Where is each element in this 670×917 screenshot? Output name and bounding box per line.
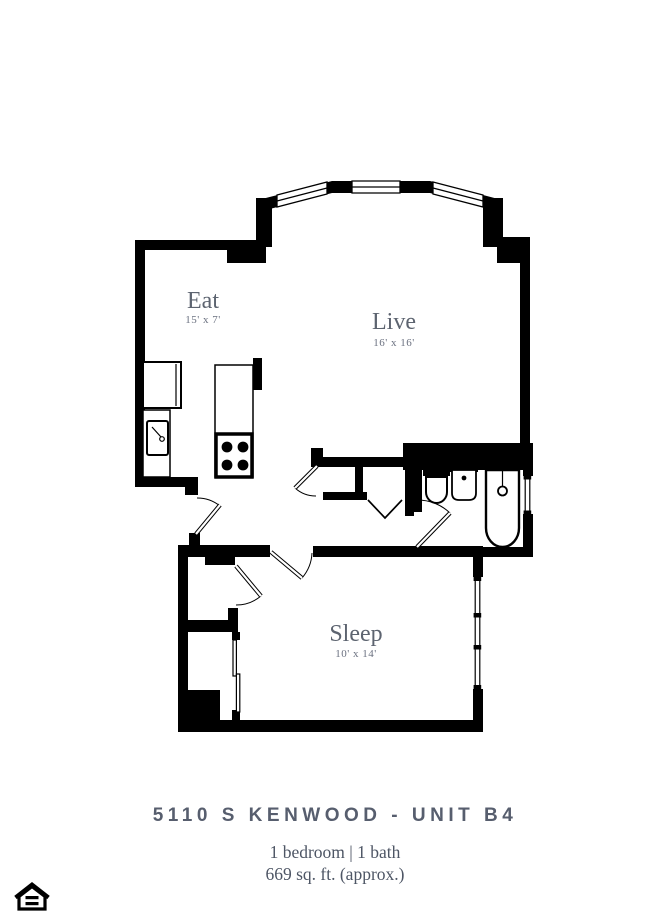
toilet-icon — [423, 466, 450, 503]
wall — [323, 492, 367, 500]
wall — [185, 620, 238, 632]
bathroom — [423, 464, 519, 547]
wall — [178, 720, 483, 732]
sleep-room-dims: 10' x 14' — [335, 648, 376, 660]
live-room-label: Live — [372, 309, 416, 335]
unit-title: 5110 S KENWOOD - UNIT B4 — [0, 805, 670, 827]
wall — [232, 632, 240, 640]
unit-details: 1 bedroom | 1 bath 669 sq. ft. (approx.) — [0, 841, 670, 885]
wall — [183, 690, 220, 722]
window-icon — [352, 181, 400, 193]
hall-closet-door — [295, 466, 317, 496]
window-icon — [433, 182, 483, 207]
wall — [311, 457, 413, 467]
wall — [189, 533, 200, 547]
bathtub-icon — [486, 470, 519, 547]
sleep-window — [472, 577, 484, 689]
sleep-room-label: Sleep — [329, 621, 382, 647]
live-room-dims: 16' x 16' — [373, 337, 414, 349]
eat-room-dims: 15' x 7' — [185, 314, 220, 326]
window-icon — [277, 182, 327, 207]
sink-icon — [147, 421, 168, 455]
wall — [185, 477, 198, 495]
bed-bath-line: 1 bedroom | 1 bath — [0, 841, 670, 863]
bath-sink-icon — [450, 464, 478, 500]
bifold-closet-door — [368, 500, 402, 518]
equal-housing-icon — [12, 880, 52, 914]
bath-window — [522, 476, 534, 514]
sleep-door — [271, 552, 312, 578]
sliding-closet-door — [233, 640, 240, 712]
kitchen-door — [196, 498, 220, 534]
sleep-closet-door — [236, 566, 261, 605]
floorplan-page: Eat 15' x 7' Live 16' x 16' Sleep 10' x … — [0, 0, 670, 917]
wall — [253, 358, 262, 390]
floorplan-drawing: Eat 15' x 7' Live 16' x 16' Sleep 10' x … — [0, 0, 670, 780]
stove-icon — [216, 434, 252, 477]
wall — [497, 237, 530, 263]
arch-windows — [277, 181, 483, 207]
wall — [410, 468, 422, 512]
sqft-line: 669 sq. ft. (approx.) — [0, 863, 670, 885]
eat-room-label: Eat — [187, 288, 219, 314]
refrigerator-icon — [143, 362, 181, 408]
kitchen — [143, 362, 253, 477]
wall — [313, 546, 483, 557]
wall — [520, 262, 530, 450]
wall — [205, 545, 235, 565]
